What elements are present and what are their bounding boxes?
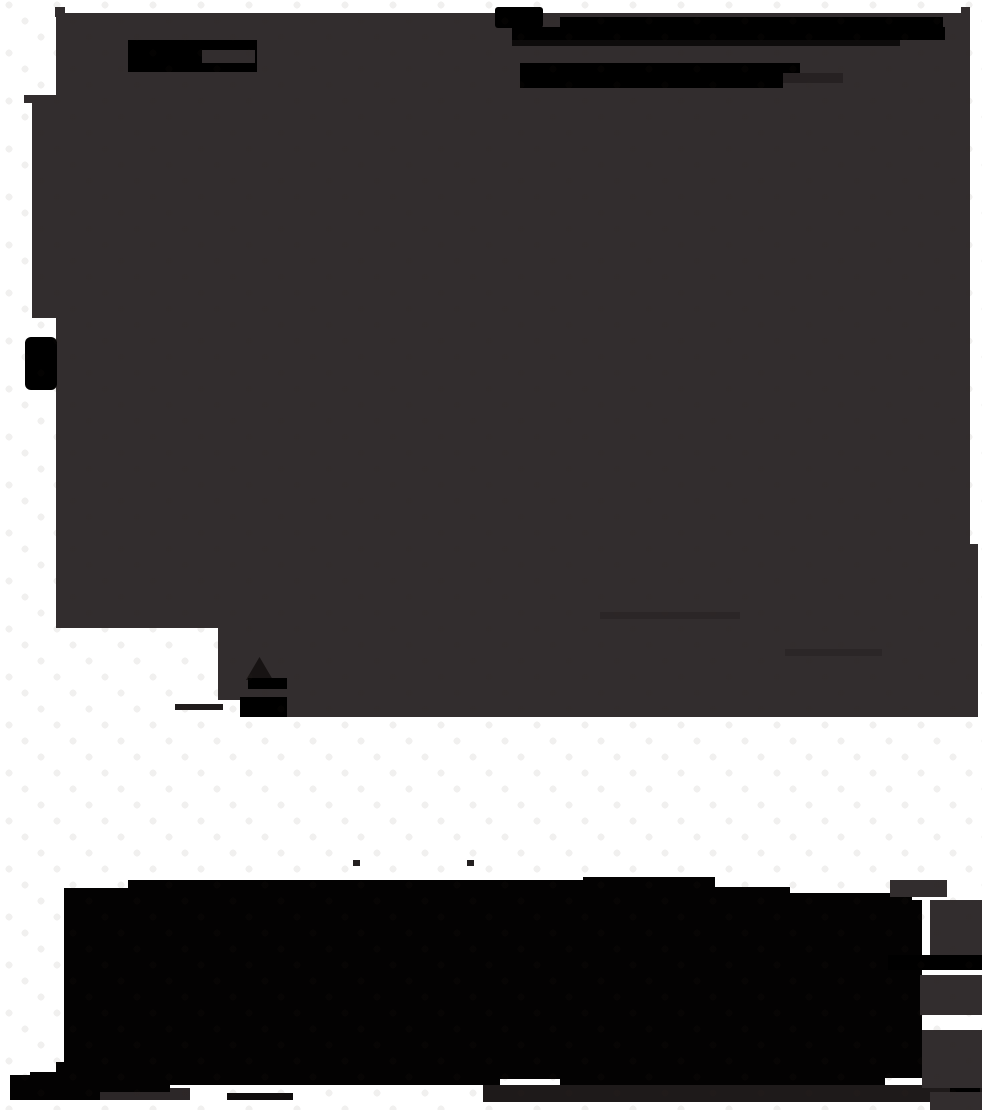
black-bar-glyph-2 <box>240 697 287 717</box>
gray-patch-right-5 <box>930 1092 982 1110</box>
black-chunk-top <box>495 7 543 28</box>
black-bar-top-3 <box>512 40 900 46</box>
black-bar-mid-2 <box>520 74 783 88</box>
gray-patch-right-3 <box>920 975 982 1015</box>
black-dash-bottom-left <box>227 1093 293 1100</box>
drawing-canvas[interactable] <box>0 0 982 1110</box>
speck-above-blob-1 <box>353 860 360 866</box>
ink-layer-front <box>0 0 982 1110</box>
black-bar-top-2 <box>512 27 945 40</box>
gray-patch-right-1 <box>890 880 947 897</box>
black-bar-glyph-1 <box>248 678 287 689</box>
dark-ext-mid <box>783 73 843 83</box>
dark-triangle-mark <box>246 657 273 680</box>
dark-line-glyph <box>175 704 223 710</box>
black-bar-mid-1 <box>520 63 800 74</box>
gray-window-in-block <box>202 50 255 63</box>
bottom-dark-bar <box>483 1085 982 1102</box>
gray-patch-right-4 <box>922 1030 982 1088</box>
black-tab-left-edge <box>25 337 57 390</box>
speck-above-blob-2 <box>467 860 474 866</box>
gray-patch-right-2 <box>930 900 982 955</box>
black-bar-right-edge <box>888 955 982 970</box>
